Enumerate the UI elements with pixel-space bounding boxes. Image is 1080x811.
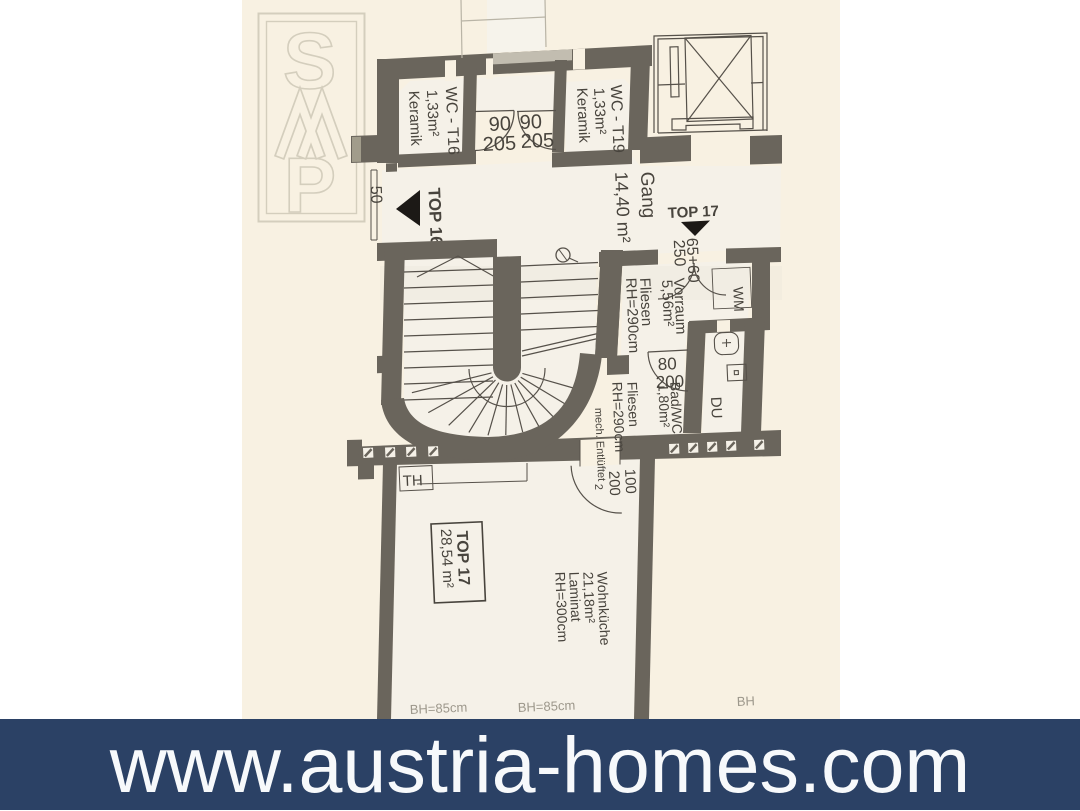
svg-text:Keramik: Keramik [405, 90, 424, 146]
svg-text:80: 80 [657, 354, 677, 374]
svg-text:50: 50 [367, 185, 385, 204]
svg-text:WC - T19: WC - T19 [607, 84, 627, 153]
svg-text:BH=85cm: BH=85cm [409, 700, 467, 717]
svg-text:WM: WM [730, 286, 747, 312]
svg-text:BH=85cm: BH=85cm [517, 698, 575, 715]
svg-text:RH=300cm: RH=300cm [552, 571, 571, 642]
svg-text:250: 250 [670, 239, 688, 267]
svg-text:205: 205 [482, 133, 516, 156]
svg-text:S: S [283, 16, 336, 105]
svg-text:205: 205 [520, 130, 554, 153]
svg-text:P: P [284, 141, 336, 229]
svg-text:RH=290cm: RH=290cm [609, 381, 628, 452]
svg-text:200: 200 [605, 470, 623, 496]
svg-text:14,40 m²: 14,40 m² [611, 171, 634, 243]
svg-text:Gang: Gang [636, 171, 659, 218]
svg-text:28,54 m²: 28,54 m² [437, 528, 457, 588]
svg-text:TH: TH [402, 472, 423, 490]
svg-text:RH=290cm: RH=290cm [622, 277, 642, 353]
svg-text:1,80m²: 1,80m² [655, 383, 673, 428]
svg-text:TOP 17: TOP 17 [667, 203, 719, 222]
svg-text:1,33m²: 1,33m² [590, 87, 609, 134]
svg-text:1,33m²: 1,33m² [423, 89, 442, 136]
svg-text:Keramik: Keramik [573, 87, 592, 143]
svg-text:WC - T16: WC - T16 [442, 86, 462, 155]
svg-text:TOP 16: TOP 16 [424, 187, 446, 246]
svg-text:DU: DU [707, 396, 725, 418]
svg-text:2: 2 [592, 484, 604, 491]
svg-text:BH: BH [736, 693, 755, 709]
svg-text:5,56m²: 5,56m² [658, 279, 677, 326]
